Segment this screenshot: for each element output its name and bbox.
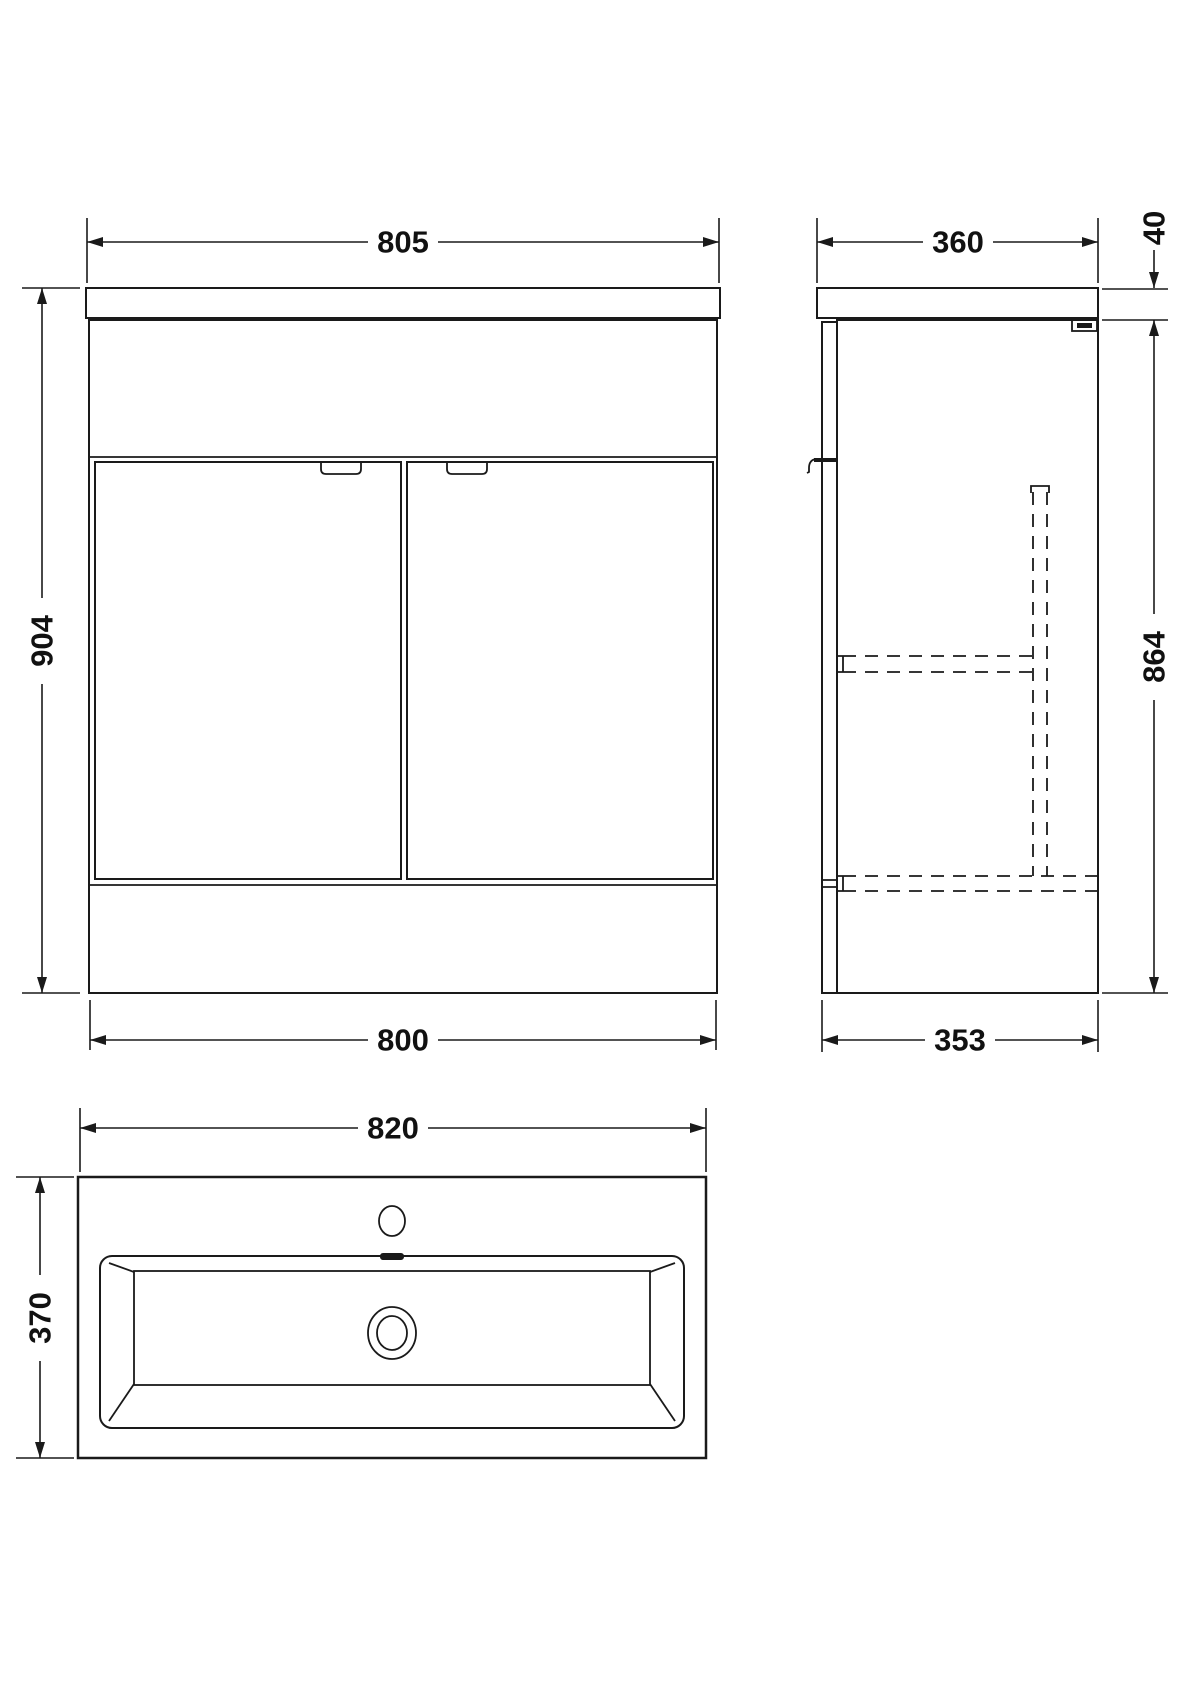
basin-plan-view <box>78 1177 706 1458</box>
arrowhead-bottom <box>1149 977 1159 993</box>
arrowhead-top <box>1149 320 1159 336</box>
dim-label-basin-width: 820 <box>367 1111 419 1146</box>
dimension-370: 370 <box>16 1177 74 1458</box>
worktop-side <box>817 288 1098 318</box>
arrowhead-bottom <box>35 1442 45 1458</box>
dimension-800: 800 <box>90 1000 716 1058</box>
arrowhead-right <box>690 1123 706 1133</box>
dim-label-height: 904 <box>25 614 60 666</box>
dimension-805: 805 <box>87 218 719 283</box>
arrowhead-top <box>37 288 47 304</box>
dim-label-depth-bottom: 353 <box>934 1023 986 1058</box>
door-front-strip <box>822 322 837 993</box>
arrowhead-right <box>1082 237 1098 247</box>
technical-drawing-sheet: 805 904 800 <box>0 0 1200 1698</box>
arrowhead-left <box>90 1035 106 1045</box>
arrowhead-left <box>817 237 833 247</box>
dim-label-width-bottom: 800 <box>377 1023 429 1058</box>
arrowhead-down <box>1149 272 1159 288</box>
arrowhead-right <box>703 237 719 247</box>
dim-label-basin-depth: 370 <box>23 1292 58 1344</box>
arrowhead-left <box>80 1123 96 1133</box>
vanity-unit-drawing: 805 904 800 <box>0 0 1200 1698</box>
dim-label-cabinet-height: 864 <box>1137 630 1172 682</box>
arrowhead-top <box>35 1177 45 1193</box>
door-left <box>95 462 401 879</box>
dim-label-worktop-thickness: 40 <box>1137 211 1172 245</box>
dimension-904: 904 <box>22 288 80 993</box>
arrowhead-right <box>700 1035 716 1045</box>
overflow-slot <box>380 1253 404 1260</box>
front-elevation-view <box>86 288 720 993</box>
dim-label-width-top: 805 <box>377 225 429 260</box>
arrowhead-left <box>822 1035 838 1045</box>
fixing-clip-slot <box>1077 323 1092 328</box>
door-right <box>407 462 713 879</box>
worktop-front <box>86 288 720 318</box>
arrowhead-right <box>1082 1035 1098 1045</box>
dimension-820: 820 <box>80 1108 706 1172</box>
arrowhead-left <box>87 237 103 247</box>
dimension-353: 353 <box>822 1000 1098 1058</box>
dim-label-depth-top: 360 <box>932 225 984 260</box>
basin-bowl-rim <box>100 1256 684 1428</box>
dimension-360: 360 <box>817 218 1098 283</box>
dimension-40: 40 <box>1102 211 1172 320</box>
arrowhead-bottom <box>37 977 47 993</box>
dimension-864: 864 <box>1102 320 1172 993</box>
side-elevation-view <box>807 288 1098 993</box>
